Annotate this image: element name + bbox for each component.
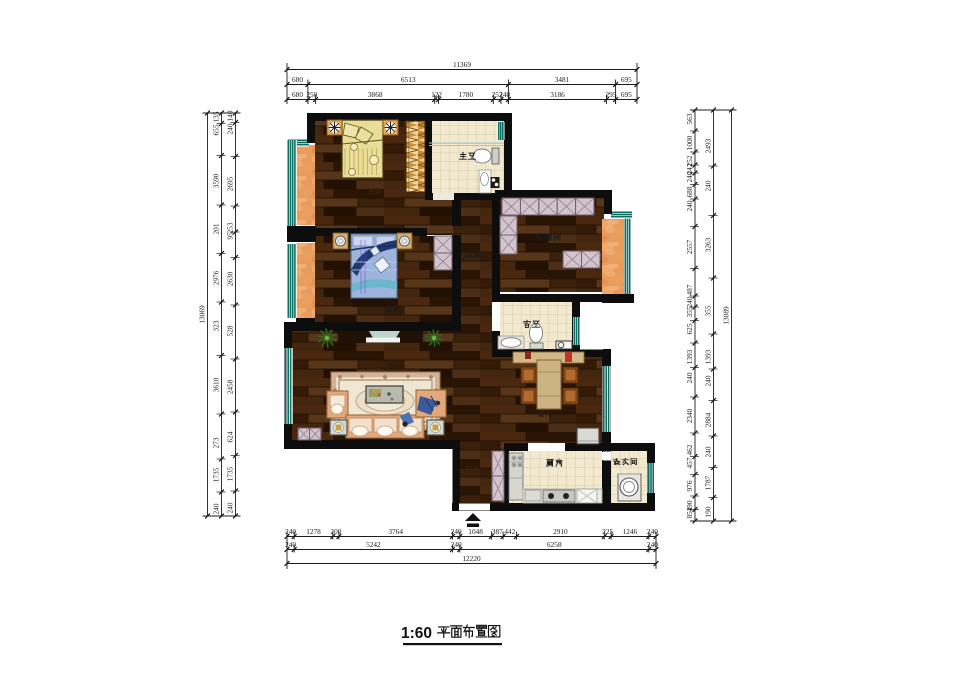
svg-text:5242: 5242 xyxy=(366,540,381,549)
svg-text:487: 487 xyxy=(685,284,694,295)
svg-text:1278: 1278 xyxy=(306,527,321,536)
svg-text:201: 201 xyxy=(212,223,221,234)
svg-text:2910: 2910 xyxy=(553,527,568,536)
svg-text:442: 442 xyxy=(504,527,515,536)
svg-text:240: 240 xyxy=(226,123,235,134)
svg-text:190: 190 xyxy=(704,506,713,517)
svg-text:3590: 3590 xyxy=(212,173,221,188)
svg-text:3481: 3481 xyxy=(555,75,570,84)
svg-text:12220: 12220 xyxy=(462,554,481,563)
svg-text:2493: 2493 xyxy=(704,138,713,153)
svg-text:240: 240 xyxy=(285,527,296,536)
svg-text:13069: 13069 xyxy=(198,305,207,324)
svg-text:225: 225 xyxy=(602,527,613,536)
svg-text:695: 695 xyxy=(621,90,632,99)
svg-text:240: 240 xyxy=(685,171,694,182)
svg-text:240: 240 xyxy=(704,375,713,386)
svg-text:1246: 1246 xyxy=(623,527,638,536)
svg-text:563: 563 xyxy=(685,113,694,124)
svg-text:240: 240 xyxy=(212,503,221,514)
svg-text:1000: 1000 xyxy=(685,135,694,150)
svg-text:680: 680 xyxy=(292,75,303,84)
svg-text:135: 135 xyxy=(212,111,221,122)
svg-text:2884: 2884 xyxy=(704,412,713,427)
svg-text:387: 387 xyxy=(492,527,503,536)
svg-text:240: 240 xyxy=(685,296,694,307)
svg-text:240: 240 xyxy=(226,502,235,513)
svg-text:3610: 3610 xyxy=(212,377,221,392)
svg-text:1780: 1780 xyxy=(459,90,474,99)
svg-text:240: 240 xyxy=(451,540,462,549)
svg-text:2340: 2340 xyxy=(685,408,694,423)
svg-text:625: 625 xyxy=(685,323,694,334)
svg-text:655: 655 xyxy=(212,124,221,135)
svg-text:462: 462 xyxy=(685,444,694,455)
svg-text:240: 240 xyxy=(647,527,658,536)
svg-text:240: 240 xyxy=(704,446,713,457)
svg-text:2458: 2458 xyxy=(226,379,235,394)
svg-text:1787: 1787 xyxy=(704,475,713,490)
svg-text:2976: 2976 xyxy=(212,270,221,285)
svg-text:253: 253 xyxy=(226,222,235,233)
svg-text:3263: 3263 xyxy=(704,237,713,252)
svg-text:1:60: 1:60 xyxy=(401,625,432,642)
svg-text:11369: 11369 xyxy=(453,60,471,69)
svg-text:457: 457 xyxy=(685,457,694,468)
svg-text:976: 976 xyxy=(685,480,694,491)
svg-text:240: 240 xyxy=(704,180,713,191)
svg-text:323: 323 xyxy=(212,320,221,331)
svg-text:240: 240 xyxy=(685,200,694,211)
svg-text:13089: 13089 xyxy=(722,306,731,325)
svg-text:854: 854 xyxy=(685,507,694,518)
svg-text:240: 240 xyxy=(285,540,296,549)
svg-text:528: 528 xyxy=(226,325,235,336)
svg-text:1393: 1393 xyxy=(704,349,713,364)
svg-text:680: 680 xyxy=(292,90,303,99)
svg-text:95: 95 xyxy=(226,232,235,240)
svg-text:240: 240 xyxy=(647,540,658,549)
svg-text:1048: 1048 xyxy=(468,527,483,536)
svg-text:355: 355 xyxy=(704,305,713,316)
svg-text:2630: 2630 xyxy=(226,271,235,286)
svg-text:1735: 1735 xyxy=(212,467,221,482)
svg-text:1735: 1735 xyxy=(226,466,235,481)
svg-text:3868: 3868 xyxy=(368,90,383,99)
svg-text:6513: 6513 xyxy=(401,75,416,84)
svg-text:240: 240 xyxy=(685,372,694,383)
svg-text:2557: 2557 xyxy=(685,239,694,254)
svg-text:6258: 6258 xyxy=(547,540,562,549)
svg-text:273: 273 xyxy=(212,437,221,448)
svg-text:355: 355 xyxy=(685,306,694,317)
svg-text:140: 140 xyxy=(226,110,235,121)
svg-text:240: 240 xyxy=(451,527,462,536)
svg-text:695: 695 xyxy=(621,75,632,84)
svg-text:2695: 2695 xyxy=(226,176,235,191)
svg-text:624: 624 xyxy=(226,431,235,442)
svg-text:1393: 1393 xyxy=(685,349,694,364)
svg-text:688: 688 xyxy=(685,186,694,197)
svg-text:3764: 3764 xyxy=(388,527,403,536)
svg-text:295: 295 xyxy=(606,90,617,99)
svg-text:3186: 3186 xyxy=(550,90,565,99)
